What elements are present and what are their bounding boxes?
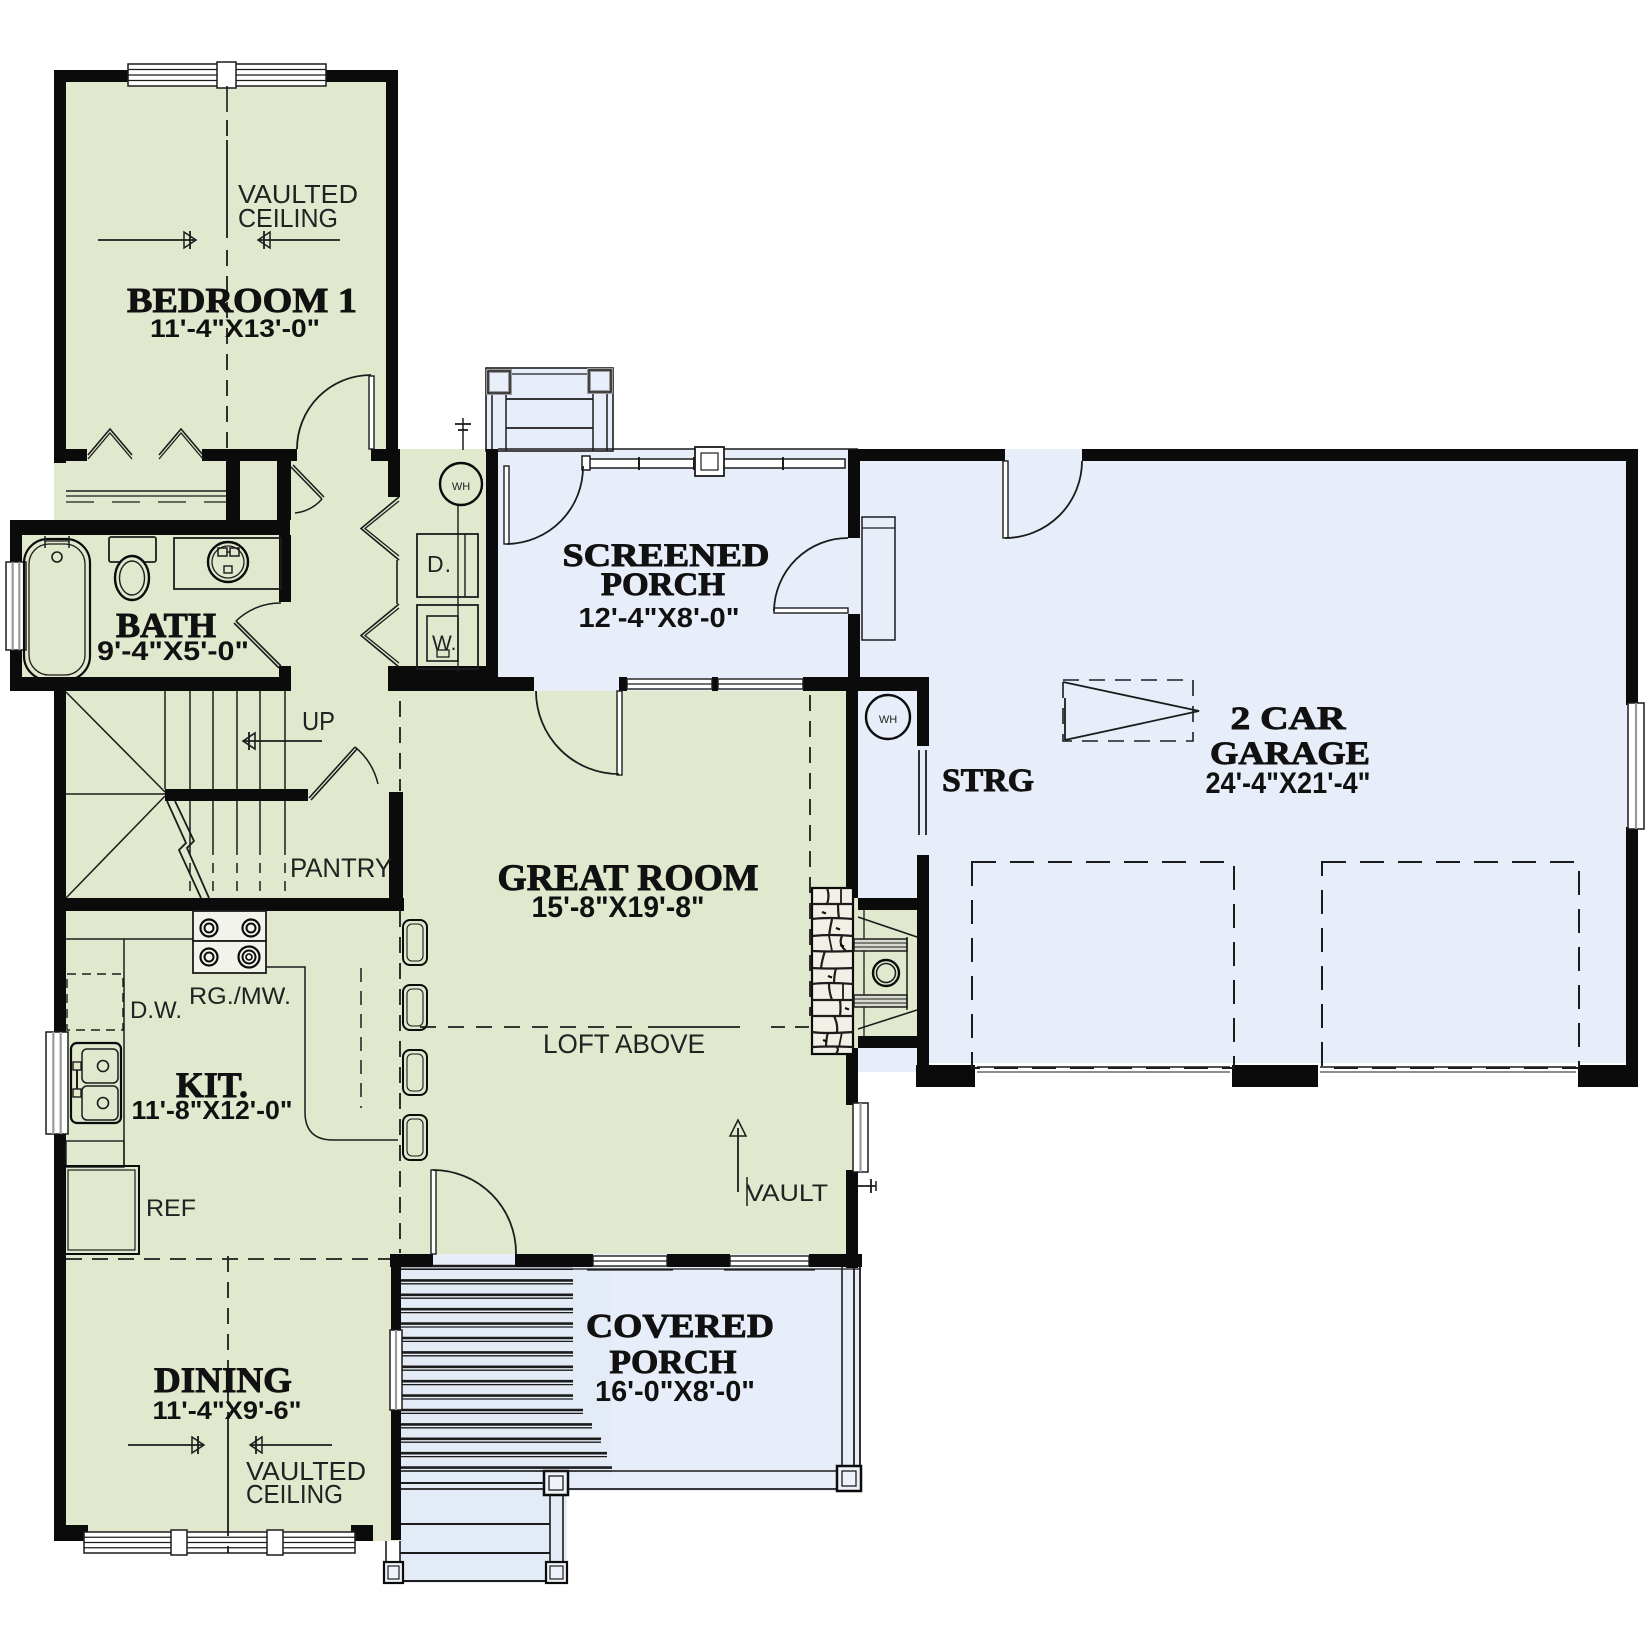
svg-text:UP: UP	[302, 706, 335, 736]
svg-text:2 CAR: 2 CAR	[1231, 701, 1347, 737]
svg-text:PORCH: PORCH	[601, 567, 725, 603]
svg-text:VAULT: VAULT	[746, 1180, 828, 1207]
svg-text:DINING: DINING	[154, 1360, 292, 1400]
svg-text:WH: WH	[879, 714, 897, 726]
svg-text:LOFT ABOVE: LOFT ABOVE	[543, 1029, 705, 1059]
svg-text:11'-4"X9'-6": 11'-4"X9'-6"	[153, 1397, 302, 1425]
svg-text:CEILING: CEILING	[238, 203, 338, 233]
svg-text:15'-8"X19'-8": 15'-8"X19'-8"	[532, 891, 705, 924]
svg-text:D.: D.	[427, 551, 452, 577]
svg-text:9'-4"X5'-0": 9'-4"X5'-0"	[97, 636, 249, 666]
svg-text:COVERED: COVERED	[586, 1308, 774, 1345]
svg-text:W.: W.	[432, 632, 457, 655]
svg-text:PANTRY: PANTRY	[290, 853, 392, 883]
svg-text:RG./MW.: RG./MW.	[189, 983, 291, 1010]
svg-text:CEILING: CEILING	[246, 1479, 343, 1509]
svg-text:D.W.: D.W.	[130, 997, 182, 1024]
svg-text:16'-0"X8'-0": 16'-0"X8'-0"	[595, 1376, 755, 1408]
svg-text:WH: WH	[452, 481, 470, 493]
svg-text:24'-4"X21'-4": 24'-4"X21'-4"	[1206, 767, 1371, 800]
svg-text:REF: REF	[146, 1195, 196, 1222]
svg-text:STRG: STRG	[942, 763, 1034, 799]
svg-text:11'-4"X13'-0": 11'-4"X13'-0"	[150, 315, 320, 343]
svg-text:12'-4"X8'-0": 12'-4"X8'-0"	[579, 602, 740, 633]
svg-text:11'-8"X12'-0": 11'-8"X12'-0"	[132, 1095, 293, 1125]
